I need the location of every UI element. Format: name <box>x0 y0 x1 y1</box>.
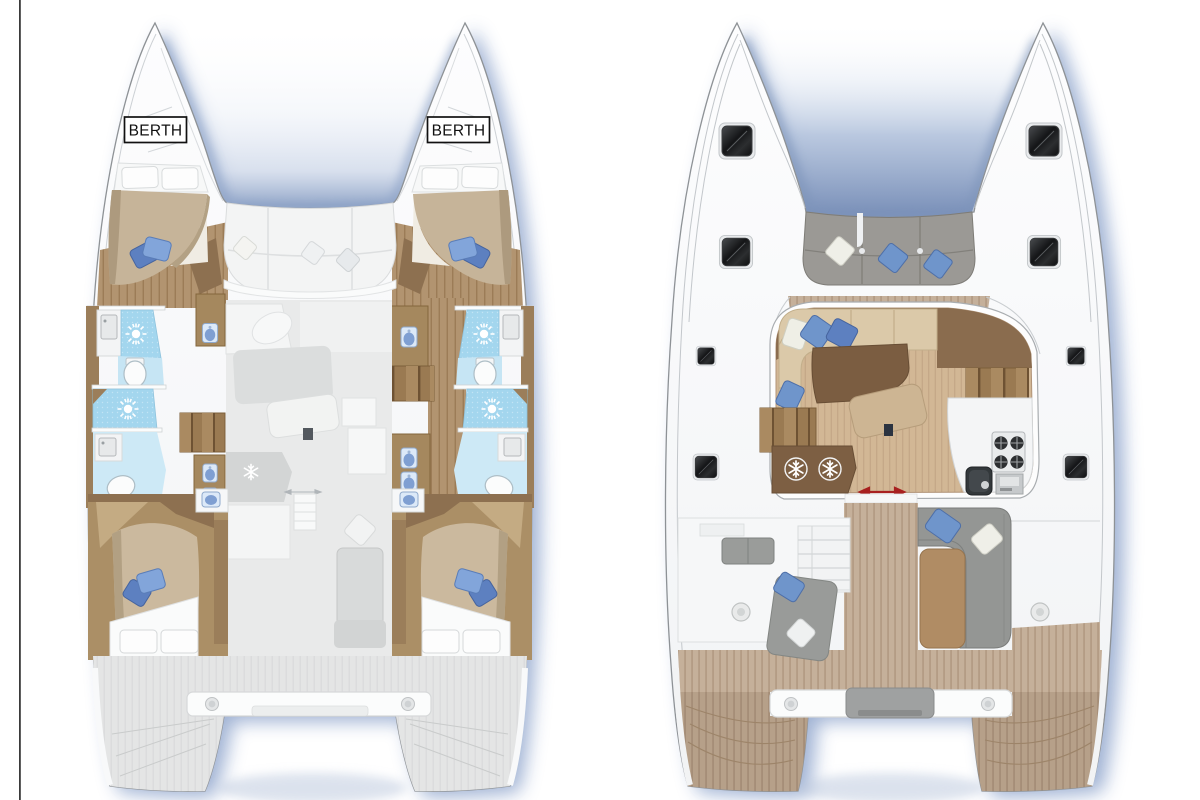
svg-text:BERTH: BERTH <box>432 123 486 140</box>
svg-text:BERTH: BERTH <box>129 123 183 140</box>
